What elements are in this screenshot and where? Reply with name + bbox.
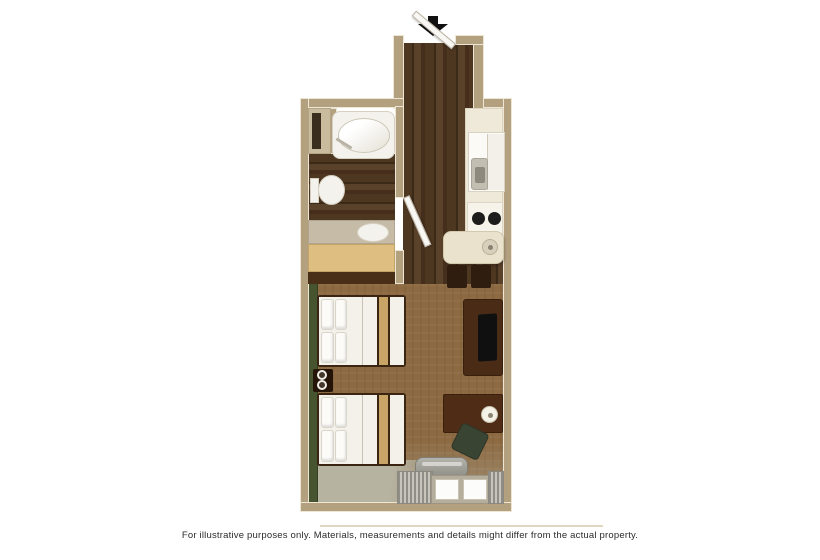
caption-divider bbox=[320, 525, 603, 527]
curtain-right bbox=[488, 471, 504, 504]
table-bowl-center bbox=[488, 245, 493, 250]
dining-table bbox=[443, 231, 504, 264]
curtain-left bbox=[397, 471, 433, 504]
bed-2-pillow bbox=[335, 397, 347, 428]
entry-corridor-floor bbox=[403, 43, 473, 109]
window-pane-left bbox=[435, 479, 459, 500]
bathroom-top-wall bbox=[300, 98, 404, 108]
bed-1-pillow bbox=[335, 332, 347, 363]
bathroom-hall-wall-upper bbox=[395, 106, 404, 198]
toilet-bowl bbox=[318, 175, 345, 205]
window-pane-right bbox=[463, 479, 487, 500]
tv-icon bbox=[478, 313, 497, 361]
desk-lamp-icon bbox=[481, 406, 498, 423]
refrigerator-door bbox=[487, 134, 504, 190]
disclaimer-caption: For illustrative purposes only. Material… bbox=[0, 530, 820, 541]
bed-2-duvet-seam bbox=[362, 395, 363, 464]
entry-top-wall bbox=[455, 35, 484, 45]
vanity-cabinet bbox=[308, 244, 395, 272]
bed-1-duvet-seam bbox=[362, 297, 363, 365]
stove-burner-right bbox=[488, 212, 501, 225]
two-burner-stove bbox=[467, 202, 503, 234]
window bbox=[431, 475, 490, 504]
dining-chair-left bbox=[447, 265, 467, 288]
vanity-counter bbox=[308, 220, 395, 244]
bed-2-pillow bbox=[321, 430, 334, 462]
floor-plan-page: For illustrative purposes only. Material… bbox=[0, 0, 820, 560]
bed-2-pillow bbox=[321, 397, 334, 428]
left-exterior-wall bbox=[300, 98, 309, 512]
bathtub bbox=[332, 111, 395, 159]
bed-1-pillow bbox=[321, 332, 334, 363]
bed-1-accent-stripe bbox=[377, 297, 390, 365]
bed-1 bbox=[317, 295, 406, 367]
bathtub-basin bbox=[338, 118, 390, 153]
bed-2 bbox=[317, 393, 406, 466]
nightstand bbox=[313, 369, 333, 392]
kitchen-sink bbox=[471, 158, 488, 190]
desk-lamp-center bbox=[488, 413, 493, 418]
bed-2-pillow bbox=[335, 430, 347, 462]
stove-burner-left bbox=[472, 212, 485, 225]
linen-closet bbox=[308, 108, 331, 154]
vanity-sink bbox=[357, 223, 389, 242]
table-bowl bbox=[482, 239, 498, 255]
kitchen-faucet bbox=[475, 167, 485, 183]
closet-shelf-slot bbox=[312, 113, 321, 149]
bathroom-hall-wall-lower bbox=[395, 250, 404, 284]
tv-stand bbox=[463, 299, 503, 376]
nightstand-lamp-icon bbox=[317, 380, 327, 390]
nightstand-lamp-icon bbox=[317, 370, 327, 380]
bed-1-pillow bbox=[335, 299, 347, 330]
ac-vent bbox=[422, 462, 462, 466]
bed-1-pillow bbox=[321, 299, 334, 330]
dining-chair-right bbox=[471, 265, 491, 288]
vanity-base bbox=[308, 272, 395, 284]
bed-2-accent-stripe bbox=[377, 395, 390, 464]
